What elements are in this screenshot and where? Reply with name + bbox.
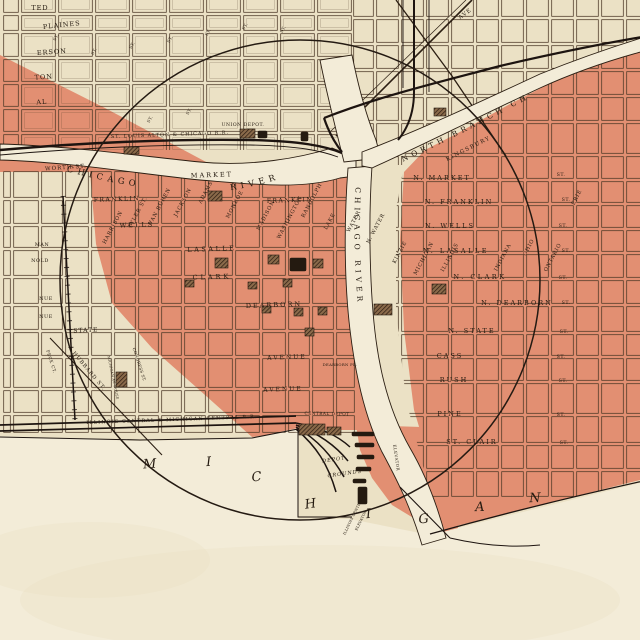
street-label-n1: N. MARKET bbox=[413, 174, 471, 182]
building-block bbox=[301, 132, 308, 141]
building-block bbox=[248, 282, 257, 289]
st-marker: ST. bbox=[562, 248, 571, 254]
building-block bbox=[432, 284, 446, 294]
lake-label-letter: C bbox=[251, 470, 263, 486]
street-label-w1: TED bbox=[31, 4, 48, 12]
st-marker: ST. bbox=[560, 329, 569, 335]
building-block bbox=[327, 427, 341, 435]
st-marker: ST. bbox=[557, 172, 566, 178]
building-block bbox=[353, 479, 366, 483]
building-block bbox=[374, 304, 392, 315]
building-block bbox=[434, 108, 446, 116]
street-label-w4: TON bbox=[34, 72, 53, 81]
building-block bbox=[240, 129, 255, 138]
lake-label-letter: M bbox=[142, 457, 158, 473]
street-label-w9: NUE bbox=[39, 296, 53, 302]
street-label-w11: STATE bbox=[73, 326, 99, 334]
building-block bbox=[268, 255, 279, 264]
street-label-c8: AVENUE bbox=[266, 353, 307, 361]
street-label-w7: MAN bbox=[35, 242, 50, 248]
st-marker: ST. bbox=[559, 275, 568, 281]
st-marker: ST. bbox=[562, 300, 571, 306]
street-label-n6: N. DEARBORN bbox=[481, 299, 553, 307]
building-block bbox=[124, 147, 139, 154]
lake-label-letter: N bbox=[528, 491, 542, 506]
chicago-burnt-district-map: TEDPLAINESERSONTONALWORTH ST.MANNOLDNUEN… bbox=[0, 0, 640, 640]
building-block bbox=[305, 328, 314, 336]
st-marker: ST. bbox=[557, 354, 566, 360]
street-label-c9: AVENUE bbox=[262, 385, 303, 393]
building-block bbox=[299, 424, 325, 435]
map-canvas: TEDPLAINESERSONTONALWORTH ST.MANNOLDNUEN… bbox=[0, 0, 640, 640]
building-block bbox=[355, 443, 374, 447]
st-marker: ST. bbox=[559, 223, 568, 229]
building-block bbox=[290, 258, 306, 271]
street-label-n10: PINE bbox=[437, 410, 462, 418]
street-label-c6: CLARK bbox=[192, 272, 231, 281]
street-label-r4: CENTRAL DEPOT bbox=[305, 411, 350, 417]
building-block bbox=[258, 131, 267, 138]
st-marker: ST. bbox=[560, 440, 569, 446]
lake-label-letter: A bbox=[474, 500, 485, 515]
building-block bbox=[318, 307, 327, 315]
building-block bbox=[215, 258, 228, 268]
street-label-n9: RUSH bbox=[440, 376, 469, 384]
lake-label-letter: G bbox=[418, 512, 429, 528]
street-label-n8: CASS bbox=[437, 352, 463, 360]
street-label-n5: N. CLARK bbox=[453, 273, 506, 281]
street-label-w10: NUE bbox=[39, 314, 53, 320]
street-label-r2: UNION DEPOT. bbox=[222, 122, 265, 128]
building-block bbox=[352, 432, 374, 436]
street-label-c1: MARKET bbox=[191, 170, 233, 179]
street-label-c5: LASALLE bbox=[187, 244, 236, 254]
building-block bbox=[294, 308, 303, 316]
building-block bbox=[357, 455, 374, 459]
building-block bbox=[283, 279, 292, 287]
street-label-n3: N. WELLS bbox=[425, 222, 475, 230]
street-label-w5: AL bbox=[35, 98, 48, 107]
street-label-w8: NOLD bbox=[31, 258, 49, 264]
building-block bbox=[208, 191, 222, 201]
street-label-n7: N. STATE bbox=[448, 327, 495, 335]
street-label-n2: N. FRANKLIN bbox=[425, 198, 494, 206]
street-label-n11: ST. CLAIR bbox=[446, 438, 497, 446]
st-marker: ST. bbox=[557, 412, 566, 418]
st-marker: ST. bbox=[562, 197, 571, 203]
street-label-c10: DEARBORN PL. bbox=[323, 362, 358, 367]
building-block bbox=[116, 372, 127, 387]
building-block bbox=[313, 259, 323, 268]
st-marker: ST. bbox=[559, 378, 568, 384]
